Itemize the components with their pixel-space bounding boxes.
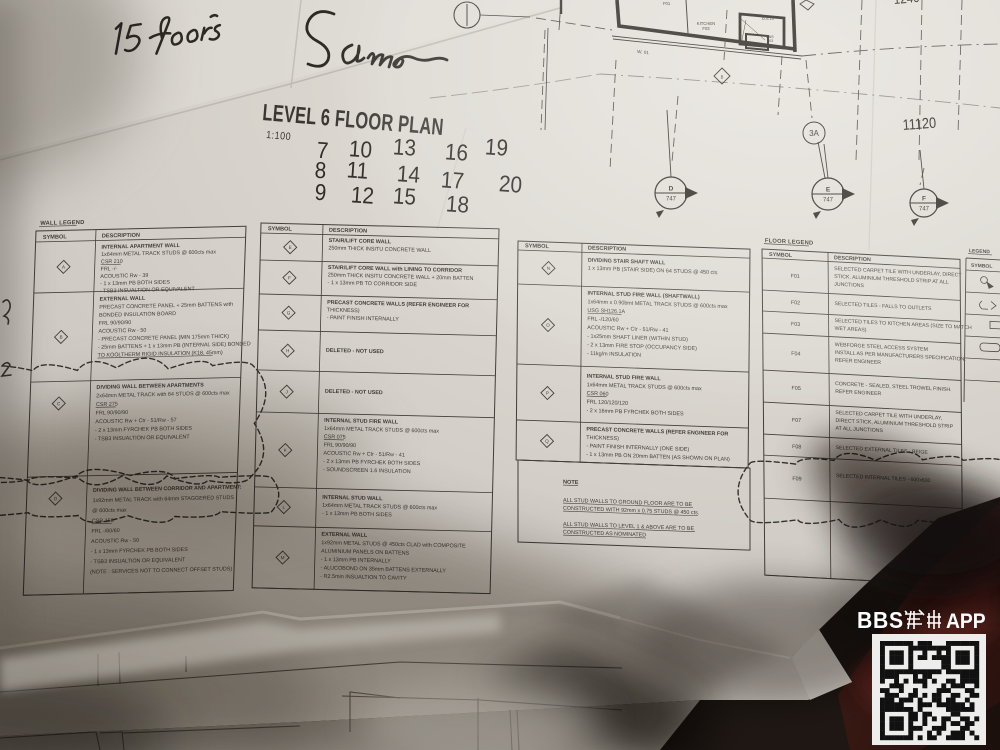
svg-text:G: G xyxy=(287,310,291,315)
svg-text:THICKNESS): THICKNESS) xyxy=(586,435,619,442)
svg-text:FRL 90/90/90: FRL 90/90/90 xyxy=(99,320,132,327)
svg-text:F07: F07 xyxy=(792,418,801,424)
svg-text:BBS: BBS xyxy=(857,607,904,633)
svg-text:FRL -/-: FRL -/- xyxy=(100,266,117,272)
svg-text:THICKNESS): THICKNESS) xyxy=(327,307,360,314)
svg-text:SYMBOL: SYMBOL xyxy=(268,226,293,233)
svg-text:APP: APP xyxy=(946,610,986,633)
svg-text:F08: F08 xyxy=(792,444,801,450)
svg-text:ACOUSTIC Rw - 50: ACOUSTIC Rw - 50 xyxy=(98,328,146,335)
svg-text:F09: F09 xyxy=(792,476,801,482)
svg-text:H: H xyxy=(286,348,289,353)
svg-text:DESCRIPTION: DESCRIPTION xyxy=(329,228,367,235)
svg-text:EXTERNAL WALL: EXTERNAL WALL xyxy=(99,296,146,303)
svg-text:F: F xyxy=(288,275,291,280)
svg-text:F05: F05 xyxy=(792,386,801,392)
svg-text:Q: Q xyxy=(545,439,549,444)
svg-text:ACOUSTIC Rw - 39: ACOUSTIC Rw - 39 xyxy=(100,273,148,280)
svg-text:J: J xyxy=(285,389,287,394)
svg-text:9: 9 xyxy=(314,179,327,206)
svg-text:P: P xyxy=(546,391,549,396)
svg-text:DESCRIPTION: DESCRIPTION xyxy=(102,233,140,240)
svg-text:SYMBOL: SYMBOL xyxy=(43,234,68,241)
svg-text:E: E xyxy=(289,245,292,250)
svg-text:11: 11 xyxy=(346,156,369,184)
svg-text:B: B xyxy=(59,335,62,340)
svg-text:1:100: 1:100 xyxy=(266,129,292,143)
svg-text:12: 12 xyxy=(350,181,375,209)
